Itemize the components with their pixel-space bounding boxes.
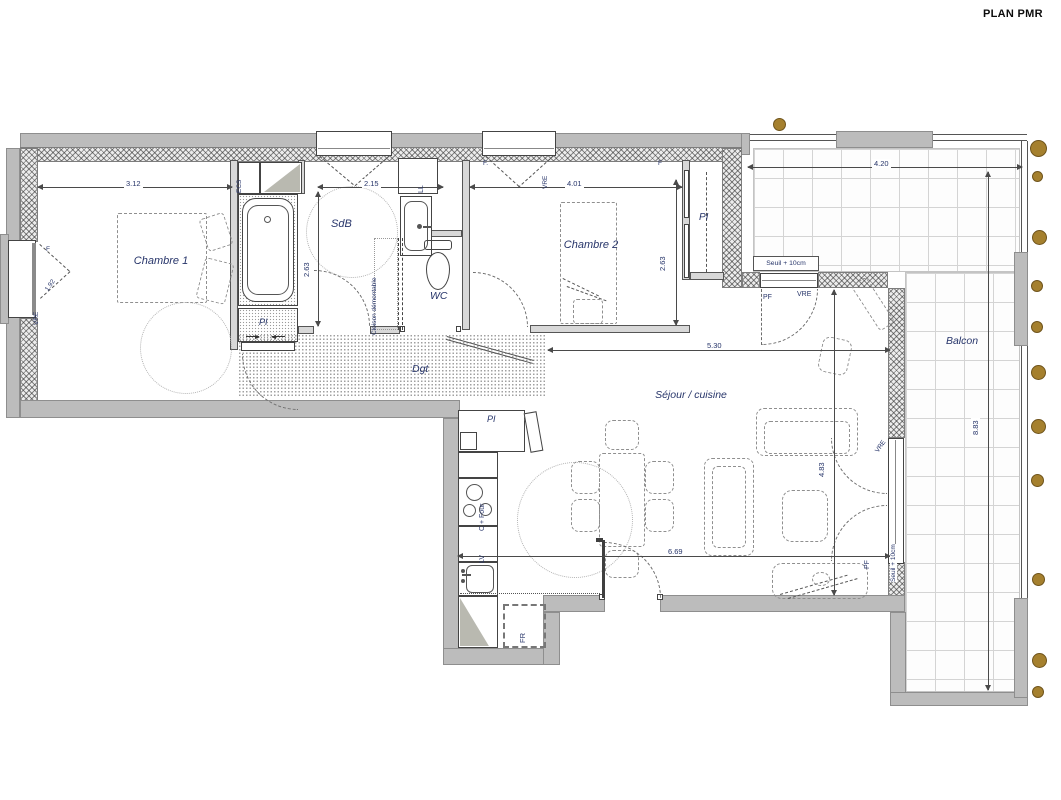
balcony-door-frame [762, 280, 816, 281]
slide-arrow-left [272, 336, 285, 337]
chair-top [605, 420, 639, 450]
dim-chambre1: 3.12 [124, 179, 143, 188]
tag-closet1: PI [259, 317, 268, 327]
balcony-railing-right-upper [1021, 141, 1028, 255]
toilet-tank [424, 240, 452, 250]
kitchen-faucet-a [461, 569, 465, 573]
post-dot [1031, 365, 1046, 380]
post-dot [1030, 140, 1047, 157]
closet1-sliding-door [241, 342, 295, 351]
kitchen-faucet-spout [462, 574, 471, 576]
room-label-dgt: Dgt [412, 363, 428, 375]
door-chambre2-swing [473, 272, 528, 327]
dimline-balcon-v [988, 172, 989, 690]
kitchen-sink [466, 565, 494, 593]
tag-threshold-right: Seuil + 10cm [890, 544, 897, 582]
door-entry-swing [604, 542, 661, 598]
tag-f-window2b: F [658, 160, 662, 167]
wall-left-upper [20, 148, 38, 242]
dim-sdb-v: 2.63 [302, 260, 311, 279]
coffee-table [782, 490, 828, 542]
wc-door-jamb-right [456, 326, 461, 332]
removable-partition-line [398, 238, 403, 330]
kitchen-faucet-b [461, 579, 465, 583]
wall-bottom-main [20, 400, 460, 418]
slide-arrow-right [246, 336, 259, 337]
chaise-pillow [812, 572, 830, 586]
tag-closet-kitchen: PI [487, 414, 496, 424]
tag-fridge: FR [518, 633, 527, 643]
post-dot [1031, 419, 1046, 434]
post-dot [1031, 321, 1043, 333]
wall-sejour-top-left [742, 272, 760, 288]
room-label-chambre2: Chambre 2 [550, 239, 632, 251]
dim-chambre2: 4.01 [565, 179, 584, 188]
window-chambre1-frame [32, 243, 36, 315]
tag-vre-window1: VRE [33, 312, 40, 325]
dim-sejour: 5.30 [705, 341, 724, 350]
dim-chambre2-v: 2.63 [658, 254, 667, 273]
entry-axis-line [460, 593, 600, 594]
dim-balcon-v: 8.83 [971, 418, 980, 437]
wall-right-top-section [722, 148, 742, 288]
tag-f-window1: F [46, 246, 50, 253]
balcony-wall-bottom [890, 692, 1028, 706]
dining-table [599, 453, 645, 547]
chair-left-b [571, 499, 600, 532]
balcony-wall-right-low [1014, 598, 1028, 698]
dim-sejour-v: 4.83 [817, 460, 826, 479]
tag-vre-window2: VRE [542, 176, 549, 189]
post-dot [1032, 230, 1047, 245]
wall-closet2-bottom [690, 272, 724, 280]
floor-plan: PLAN PMR [0, 0, 1061, 800]
room-label-wc: WC [430, 290, 448, 302]
wall-chambre2-bottom [530, 325, 690, 333]
tag-dishwasher: LV [479, 555, 486, 563]
dim-balcon: 4.20 [872, 159, 891, 168]
dimline-sejour-v [834, 290, 835, 595]
desk-chair [817, 335, 854, 376]
chair-right-b [645, 499, 674, 532]
door-entry-leaf [602, 540, 605, 598]
win-ch1-v2 [40, 271, 70, 299]
dimline-sdb-v [318, 192, 319, 326]
toilet-bowl [426, 252, 450, 290]
wall-sejour-right-upper [888, 288, 905, 438]
bathtub-drain [264, 216, 271, 223]
window-chambre2-frame [484, 148, 554, 149]
window-chambre2 [482, 131, 556, 156]
post-dot [1031, 280, 1043, 292]
room-label-sejour: Séjour / cuisine [648, 389, 734, 401]
post-dot [1032, 686, 1044, 698]
turning-circle-chambre1 [140, 302, 232, 394]
sdb-faucet [417, 224, 422, 229]
dim-sejour-bas: 6.69 [666, 547, 685, 556]
room-label-balcon: Balcon [933, 335, 991, 347]
tag-pf-top: PF [763, 294, 772, 301]
window-sdb [316, 131, 392, 156]
dimline-sejour-bas [458, 556, 890, 557]
tag-washing-machine: LL [418, 185, 425, 193]
post-dot [773, 118, 786, 131]
dimline-sejour [548, 350, 890, 351]
post-dot [1032, 171, 1043, 182]
tag-removable-partition: Cloison démontable [371, 278, 378, 335]
bed2-foot-box [573, 299, 603, 324]
kitchen-closet-inner [460, 432, 477, 450]
tag-cooker-oven: C + Four [479, 504, 486, 531]
burner-small-a [463, 504, 476, 517]
door-sdb-swing [314, 270, 370, 326]
post-dot [1031, 474, 1044, 487]
balcony-wall-left-low [890, 612, 906, 704]
tag-closet2: PI [699, 212, 708, 223]
tag-f-window2: F. [483, 160, 488, 167]
room-label-sdb: SdB [331, 218, 352, 230]
wall-sdb-bottom-left [298, 326, 314, 334]
tag-water-heater: ECS [236, 180, 243, 193]
kitchen-closet-door [524, 411, 544, 453]
balcony-side-wall-block [1014, 252, 1028, 346]
post-dot [1032, 653, 1047, 668]
page-title: PLAN PMR [983, 8, 1055, 20]
door-balcony-leaf [761, 289, 762, 345]
burner-large [466, 484, 483, 501]
sdb-faucet-handle [423, 226, 432, 228]
sofa-vertical-seat [712, 466, 746, 548]
wall-sejour-bottom-left [543, 595, 605, 612]
tag-pf-right: PF [864, 560, 871, 569]
balcony-planter [836, 131, 933, 148]
room-label-chambre1: Chambre 1 [120, 255, 202, 267]
post-dot [1032, 573, 1045, 586]
dim-sdb: 2.15 [362, 179, 381, 188]
chair-right-a [645, 461, 674, 494]
window-sdb-frame [318, 148, 390, 149]
chair-left-a [571, 461, 600, 494]
tag-threshold-top: Seuil + 10cm [753, 256, 819, 271]
door-entry-handle [596, 538, 603, 542]
win-ch1-v1 [39, 244, 69, 272]
kitchen-counter-a [458, 452, 498, 478]
french-door-swing-bottom [831, 505, 887, 561]
dimline-chambre2-v [676, 180, 677, 325]
tag-vre-top: VRE [797, 291, 811, 298]
balcony-railing-right-lower [1021, 346, 1028, 598]
closet2-door-a [684, 170, 689, 218]
closet2-door-b [684, 224, 689, 278]
